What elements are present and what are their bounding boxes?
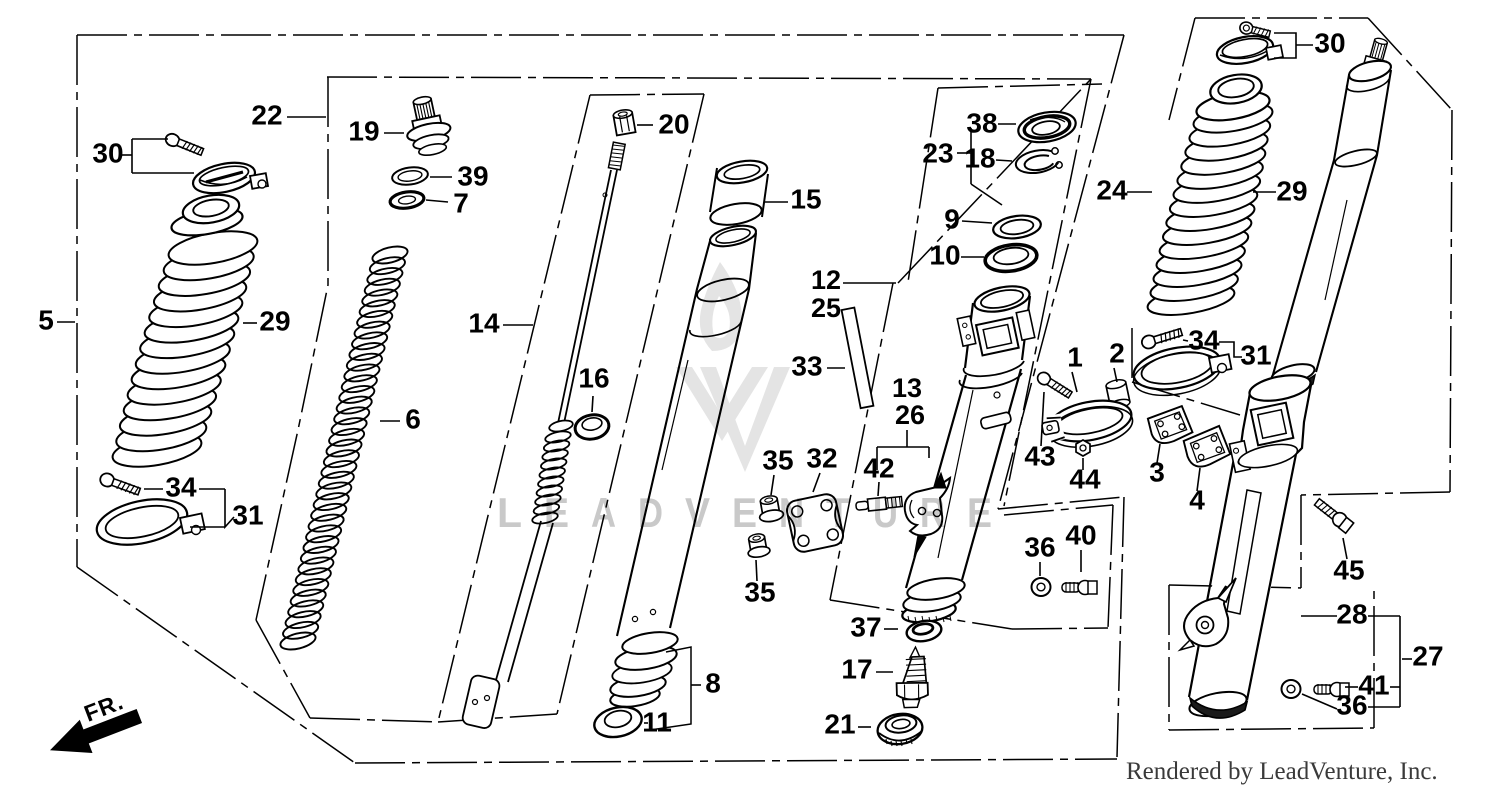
svg-text:29: 29 — [1276, 175, 1307, 206]
svg-text:36: 36 — [1336, 689, 1367, 720]
svg-text:13: 13 — [892, 373, 922, 403]
svg-text:34: 34 — [1188, 324, 1220, 355]
svg-text:N: N — [779, 489, 804, 536]
svg-text:11: 11 — [642, 706, 672, 737]
svg-text:28: 28 — [1336, 598, 1367, 629]
svg-text:23: 23 — [922, 137, 953, 168]
svg-text:Rendered by LeadVenture, Inc.: Rendered by LeadVenture, Inc. — [1126, 758, 1438, 785]
svg-text:37: 37 — [850, 611, 881, 642]
svg-text:U: U — [873, 489, 898, 536]
svg-text:20: 20 — [658, 108, 689, 139]
svg-text:V: V — [685, 489, 710, 536]
svg-text:15: 15 — [790, 183, 821, 214]
svg-text:6: 6 — [405, 403, 421, 434]
svg-text:9: 9 — [944, 203, 960, 234]
svg-text:22: 22 — [251, 99, 282, 130]
svg-text:E: E — [967, 489, 992, 536]
svg-text:18: 18 — [964, 142, 995, 173]
svg-text:L: L — [497, 489, 522, 536]
svg-text:R: R — [920, 489, 945, 536]
svg-text:45: 45 — [1333, 554, 1364, 585]
svg-text:2: 2 — [1109, 337, 1125, 368]
svg-text:44: 44 — [1069, 463, 1101, 494]
svg-text:31: 31 — [1240, 339, 1271, 370]
svg-text:33: 33 — [791, 350, 822, 381]
svg-text:7: 7 — [453, 187, 469, 218]
svg-text:D: D — [638, 489, 663, 536]
svg-text:14: 14 — [468, 307, 500, 338]
svg-text:35: 35 — [762, 444, 793, 475]
svg-text:E: E — [544, 489, 569, 536]
svg-text:31: 31 — [232, 499, 263, 530]
svg-text:21: 21 — [824, 708, 855, 739]
svg-text:T: T — [826, 489, 851, 536]
svg-text:24: 24 — [1096, 174, 1128, 205]
svg-text:32: 32 — [806, 442, 837, 473]
svg-text:36: 36 — [1024, 531, 1055, 562]
svg-text:1: 1 — [1067, 341, 1083, 372]
svg-text:10: 10 — [929, 239, 960, 270]
svg-text:29: 29 — [259, 305, 290, 336]
svg-text:35: 35 — [744, 576, 775, 607]
svg-text:25: 25 — [811, 293, 841, 323]
svg-text:A: A — [591, 489, 616, 536]
svg-text:12: 12 — [811, 265, 841, 295]
svg-text:5: 5 — [38, 304, 54, 335]
svg-text:19: 19 — [348, 115, 379, 146]
svg-text:30: 30 — [92, 137, 123, 168]
svg-text:40: 40 — [1065, 519, 1096, 550]
svg-text:8: 8 — [705, 667, 721, 698]
svg-text:27: 27 — [1412, 640, 1443, 671]
svg-text:42: 42 — [863, 452, 894, 483]
svg-text:30: 30 — [1314, 27, 1345, 58]
svg-text:43: 43 — [1024, 440, 1055, 471]
svg-text:26: 26 — [895, 400, 925, 430]
svg-text:17: 17 — [841, 653, 872, 684]
svg-text:16: 16 — [578, 362, 609, 393]
svg-text:34: 34 — [165, 471, 197, 502]
svg-text:E: E — [732, 489, 757, 536]
svg-text:38: 38 — [966, 107, 997, 138]
